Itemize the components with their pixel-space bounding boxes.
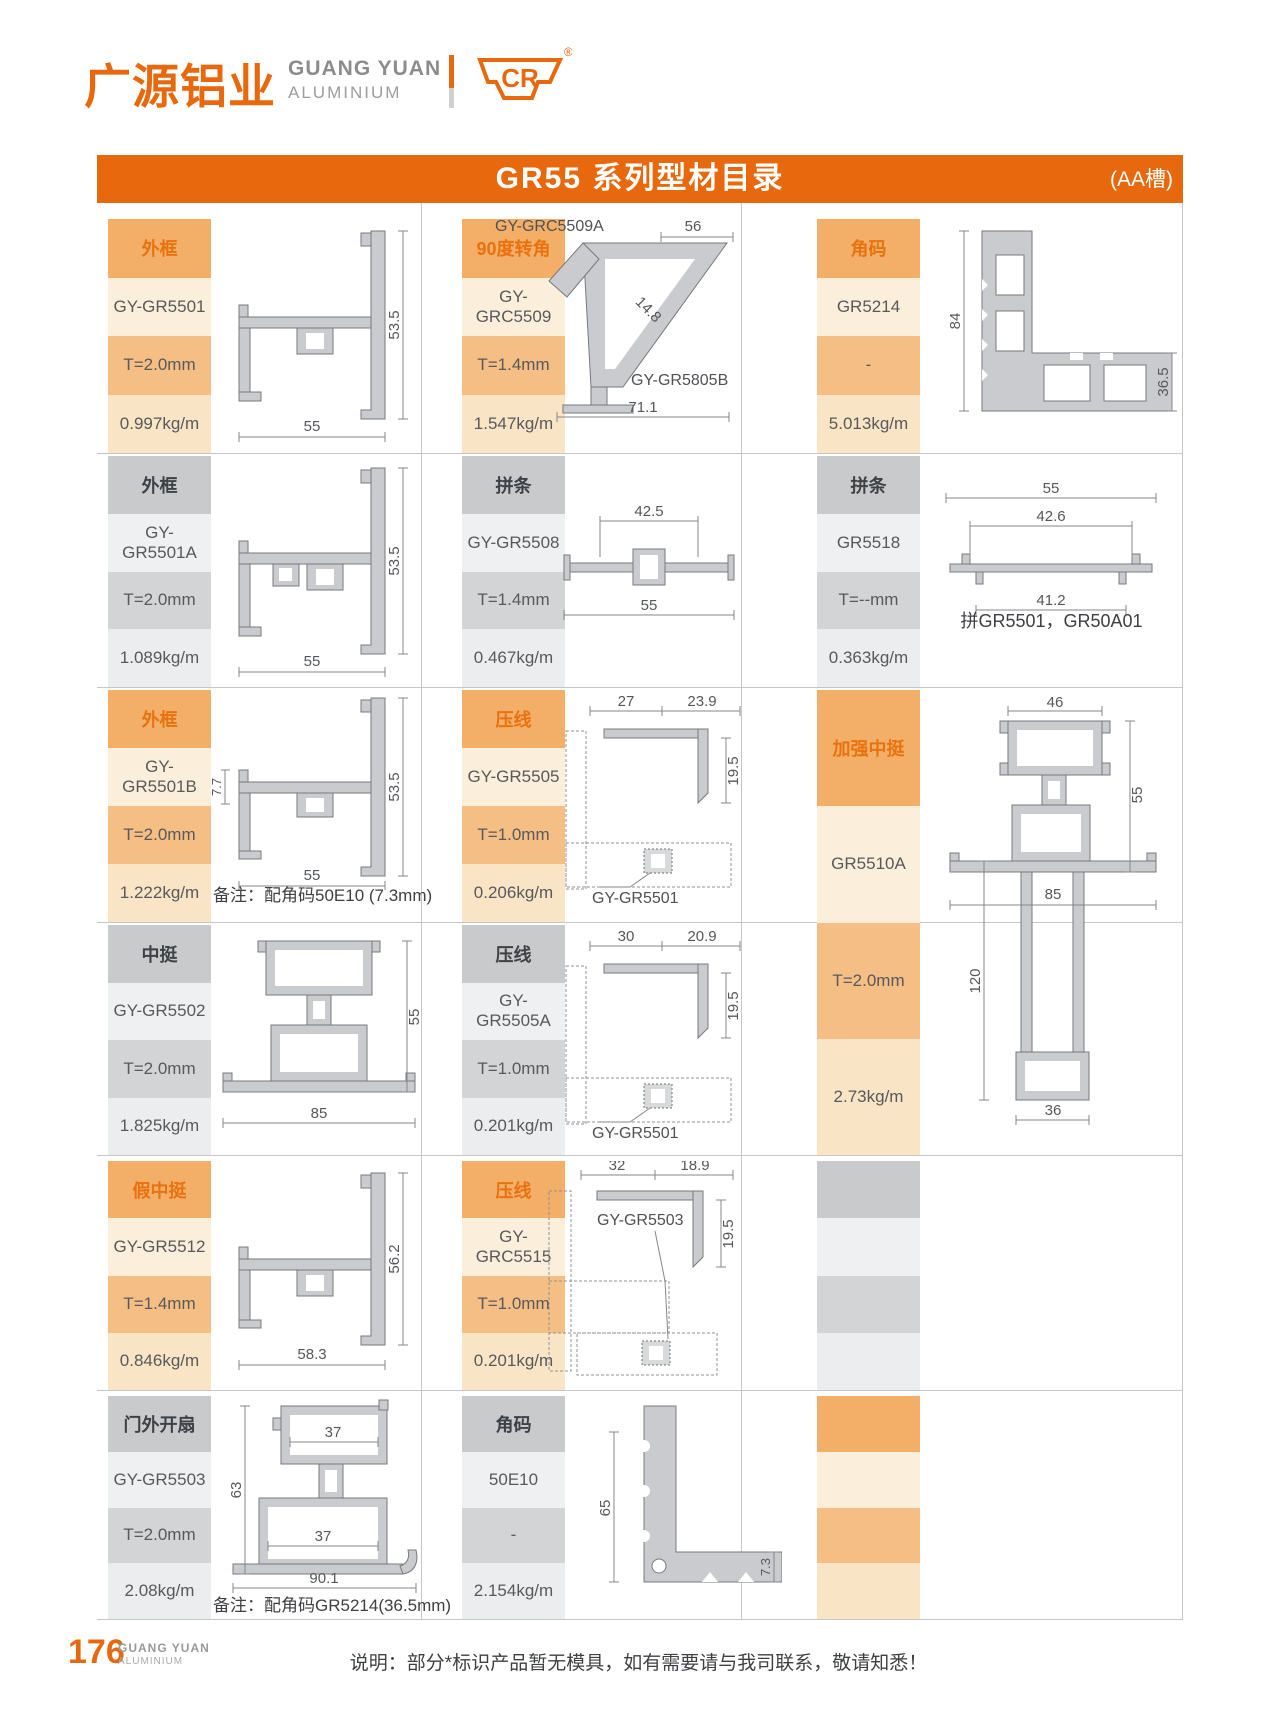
logo-divider — [449, 55, 454, 108]
dim-width: 55 — [304, 418, 321, 435]
profile-type: 压线 — [462, 925, 565, 983]
profile-code: GY-GR5503 — [108, 1452, 211, 1508]
profile-thickness: T=1.0mm — [462, 1040, 565, 1098]
profile-code: 50E10 — [462, 1452, 565, 1508]
profile-type: 外框 — [108, 456, 211, 514]
profile-card-gy-gr5501: 外框 GY-GR5501 T=2.0mm 0.997kg/m — [108, 219, 211, 453]
profile-weight: 5.013kg/m — [817, 395, 920, 454]
profile-thickness: - — [462, 1508, 565, 1564]
profile-card-gy-gr5512: 假中挺 GY-GR5512 T=1.4mm 0.846kg/m — [108, 1161, 211, 1390]
dim-top: 46 — [1047, 695, 1064, 711]
profile-code: GY-GR5501A — [108, 514, 211, 572]
dim-2: 18.9 — [680, 1161, 709, 1174]
profile-drawing-gy-gr5503: 37 37 63 90.1 — [211, 1396, 433, 1620]
dim-width: 58.3 — [297, 1346, 326, 1363]
table-title-bar: GR55 系列型材目录 (AA槽) — [97, 155, 1183, 203]
dim-height: 53.5 — [386, 310, 403, 339]
diagram-label: GY-GRC5509A — [495, 218, 604, 235]
profile-card-gr5518: 拼条 GR5518 T=--mm 0.363kg/m — [817, 456, 920, 687]
profile-thickness: T=1.4mm — [462, 572, 565, 630]
profile-card-gy-gr5501b: 外框 GY-GR5501B T=2.0mm 1.222kg/m — [108, 690, 211, 922]
profile-type: 中挺 — [108, 925, 211, 983]
dim-1: 32 — [609, 1161, 626, 1174]
dim-right: 36.5 — [1155, 367, 1172, 396]
dim-side: 19.5 — [725, 756, 742, 785]
empty-card — [817, 1161, 920, 1390]
row-divider — [97, 453, 1183, 454]
profile-type: 假中挺 — [108, 1161, 211, 1218]
row-divider — [97, 1155, 1183, 1156]
dim-2: 20.9 — [687, 930, 716, 945]
profile-thickness: T=2.0mm — [817, 923, 920, 1039]
profile-code: GY-GR5505 — [462, 748, 565, 806]
catalog-table: GR55 系列型材目录 (AA槽) 外框 GY-GR5501 T=2.0mm 0… — [97, 155, 1183, 1620]
profile-type: 拼条 — [817, 456, 920, 514]
dim-top: 55 — [1043, 480, 1060, 497]
brand-sub-en: ALUMINIUM — [288, 83, 401, 103]
profile-drawing-gy-gr5501a: 55 53.5 — [211, 456, 421, 687]
profile-thickness: T=1.0mm — [462, 806, 565, 864]
profile-type: 门外开扇 — [108, 1396, 211, 1452]
profile-card-gy-gr5503: 门外开扇 GY-GR5503 T=2.0mm 2.08kg/m — [108, 1396, 211, 1619]
profile-thickness: - — [817, 336, 920, 395]
page-title: GR55 系列型材目录 — [97, 155, 1183, 203]
svg-text:®: ® — [564, 45, 572, 59]
dim-middle: 37 — [315, 1528, 332, 1545]
profile-drawing-gr5214: 84 36.5 — [920, 219, 1183, 453]
dim-1: 27 — [618, 695, 635, 710]
dim-middle: 85 — [1045, 886, 1062, 903]
brand-logo-icon: CR ® — [472, 40, 572, 112]
profile-type: 外框 — [108, 219, 211, 278]
dim-height: 53.5 — [386, 772, 403, 801]
profile-type: 加强中挺 — [817, 690, 920, 806]
dim-middle: 42.6 — [1036, 508, 1065, 525]
profile-thickness: T=2.0mm — [108, 1508, 211, 1564]
profile-weight: 2.73kg/m — [817, 1039, 920, 1155]
profile-weight: 1.222kg/m — [108, 864, 211, 922]
mating-profile-label: GY-GR5503 — [597, 1212, 684, 1229]
profile-weight: 0.997kg/m — [108, 395, 211, 454]
dim-2: 23.9 — [687, 695, 716, 710]
series-tag: (AA槽) — [1110, 155, 1173, 203]
svg-text:CR: CR — [501, 63, 539, 93]
profile-code: GR5518 — [817, 514, 920, 572]
profile-code: GR5214 — [817, 278, 920, 337]
profile-drawing-gy-gr5502: 55 85 — [211, 925, 425, 1155]
profile-weight: 0.846kg/m — [108, 1333, 211, 1390]
profile-thickness: T=2.0mm — [108, 806, 211, 864]
dim-top: 42.5 — [634, 503, 663, 520]
profile-card-gy-gr5502: 中挺 GY-GR5502 T=2.0mm 1.825kg/m — [108, 925, 211, 1155]
profile-thickness: T=1.4mm — [108, 1276, 211, 1333]
profile-type: 角码 — [817, 219, 920, 278]
profile-code: GR5510A — [817, 806, 920, 922]
mating-profile-label: GY-GR5501 — [592, 890, 679, 907]
dim-left: 120 — [967, 968, 984, 993]
profile-weight: 1.089kg/m — [108, 629, 211, 687]
dim-side: 19.5 — [725, 991, 742, 1020]
profile-weight: 2.08kg/m — [108, 1563, 211, 1619]
profile-drawing-gy-grc5515: 32 18.9 19.5 GY-GR5503 — [537, 1161, 757, 1393]
profile-drawing-gy-gr5505a: 30 20.9 19.5 GY-GR5501 — [552, 930, 752, 1145]
mating-profile-label: GY-GR5501 — [592, 1125, 679, 1142]
profile-card-gy-gr5508: 拼条 GY-GR5508 T=1.4mm 0.467kg/m — [462, 456, 565, 687]
dim-bottom: 36 — [1045, 1102, 1062, 1119]
profile-drawing-gy-gr5501b: 7.7 53.5 55 — [211, 690, 421, 890]
profile-drawing-gr5510a: 46 55 120 85 36 — [920, 695, 1183, 1155]
diagram-label: GY-GR5805B — [631, 372, 728, 389]
profile-card-gr5510a: 加强中挺 GR5510A T=2.0mm 2.73kg/m — [817, 690, 920, 1155]
dim-top: 56 — [685, 218, 702, 235]
profile-card-gy-gr5501a: 外框 GY-GR5501A T=2.0mm 1.089kg/m — [108, 456, 211, 687]
profile-drawing-gy-gr5501: 55 53.5 — [211, 219, 421, 453]
profile-code: GY-GR5508 — [462, 514, 565, 572]
profile-card-50e10: 角码 50E10 - 2.154kg/m — [462, 1396, 565, 1619]
profile-drawing-gy-grc5509: GY-GRC5509A 56 14.8 GY-GR5805B 71.1 — [493, 215, 741, 427]
profile-weight: 0.363kg/m — [817, 629, 920, 687]
dim-left: 63 — [228, 1482, 245, 1499]
profile-drawing-50e10: 65 7.3 — [552, 1396, 782, 1620]
dim-width: 85 — [311, 1105, 328, 1122]
profile-code: GY-GR5501B — [108, 748, 211, 806]
dim-right: 55 — [1129, 787, 1146, 804]
dim-1: 30 — [618, 930, 635, 945]
profile-weight: 0.201kg/m — [462, 1098, 565, 1156]
dim-top: 37 — [325, 1424, 342, 1441]
dim-height: 56.2 — [386, 1244, 403, 1273]
profile-drawing-gy-gr5505: 27 23.9 19.5 GY-GR5501 — [552, 695, 752, 910]
profile-code: GY-GR5512 — [108, 1218, 211, 1275]
dim-height: 53.5 — [386, 546, 403, 575]
dim-bottom: 55 — [641, 597, 658, 614]
profile-thickness: T=2.0mm — [108, 1040, 211, 1098]
profile-type: 角码 — [462, 1396, 565, 1452]
row-divider — [97, 687, 1183, 688]
pairing-note: 拼GR5501，GR50A01 — [920, 607, 1183, 633]
profile-type: 外框 — [108, 690, 211, 748]
profile-type: 压线 — [462, 690, 565, 748]
catalog-page: 广源铝业 GUANG YUAN ALUMINIUM CR ® GR55 系列型材… — [0, 0, 1277, 1721]
dim-right: 7.3 — [758, 1558, 773, 1576]
profile-drawing-gy-gr5508: 42.5 55 — [552, 485, 747, 645]
dim-bottom: 71.1 — [628, 399, 657, 416]
profile-card-gr5214: 角码 GR5214 - 5.013kg/m — [817, 219, 920, 453]
profile-thickness: T=2.0mm — [108, 572, 211, 630]
profile-code: GY-GR5502 — [108, 983, 211, 1041]
profile-type: 拼条 — [462, 456, 565, 514]
profile-code: GY-GR5505A — [462, 983, 565, 1041]
profile-code: GY-GR5501 — [108, 278, 211, 337]
profile-thickness: T=2.0mm — [108, 336, 211, 395]
profile-weight: 1.825kg/m — [108, 1098, 211, 1156]
dim-side: 19.5 — [720, 1219, 737, 1248]
dim-width: 55 — [304, 653, 321, 670]
dim-left: 65 — [597, 1500, 614, 1517]
profile-weight: 0.467kg/m — [462, 629, 565, 687]
dim-left: 84 — [947, 313, 964, 330]
dim-bottom: 90.1 — [309, 1570, 338, 1587]
corner-code-note: 备注：配角码GR5214(36.5mm) — [213, 1591, 513, 1616]
profile-card-gy-gr5505a: 压线 GY-GR5505A T=1.0mm 0.201kg/m — [462, 925, 565, 1155]
corner-code-note: 备注：配角码50E10 (7.3mm) — [213, 881, 503, 906]
profile-drawing-gy-gr5512: 58.3 56.2 — [211, 1161, 421, 1390]
footer-note: 说明：部分*标识产品暂无模具，如有需要请与我司联系，敬请知悉！ — [0, 1648, 1277, 1675]
brand-name-cn: 广源铝业 — [84, 48, 276, 117]
dim-height: 55 — [406, 1009, 423, 1026]
empty-card — [817, 1396, 920, 1619]
profile-thickness: T=--mm — [817, 572, 920, 630]
brand-name-en: GUANG YUAN — [288, 57, 441, 81]
dim-left: 7.7 — [211, 778, 224, 796]
